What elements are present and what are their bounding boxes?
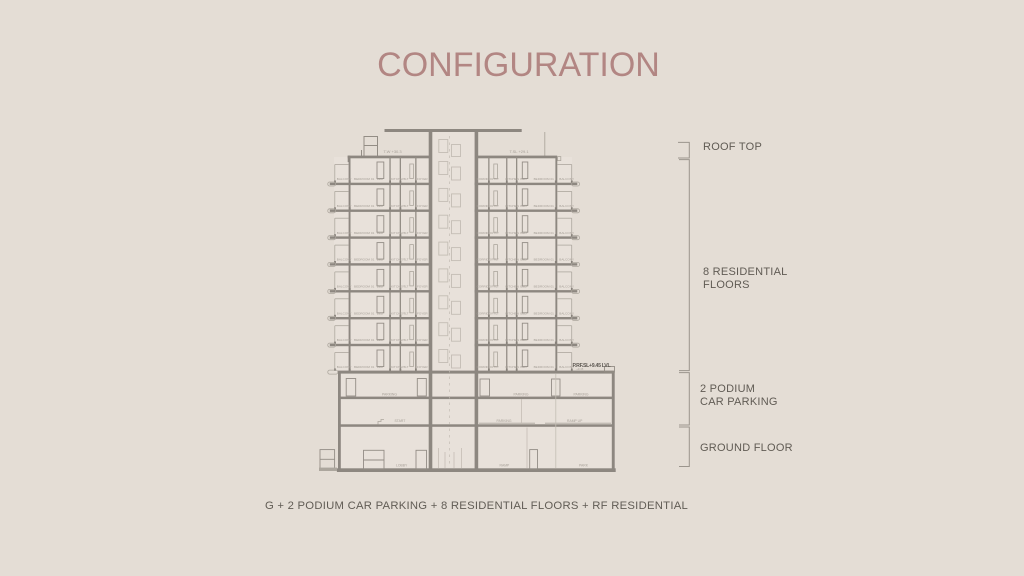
svg-text:TLT: TLT xyxy=(494,338,499,342)
svg-text:TLT: TLT xyxy=(494,365,499,369)
svg-text:BED: BED xyxy=(377,365,384,369)
svg-text:PARKING: PARKING xyxy=(382,392,397,396)
svg-text:BED: BED xyxy=(520,231,527,235)
svg-text:BED: BED xyxy=(377,204,384,208)
svg-text:TLT: TLT xyxy=(403,231,408,235)
svg-text:PARKING: PARKING xyxy=(574,392,589,396)
svg-text:TLT: TLT xyxy=(403,365,408,369)
svg-text:BEDROOM 01: BEDROOM 01 xyxy=(534,311,555,315)
svg-text:FOYER: FOYER xyxy=(417,338,428,342)
svg-text:BED: BED xyxy=(520,204,527,208)
svg-text:KITCHEN: KITCHEN xyxy=(505,204,519,208)
svg-text:FOYER: FOYER xyxy=(417,231,428,235)
svg-text:LOBBY: LOBBY xyxy=(396,463,408,467)
svg-text:BED: BED xyxy=(520,365,527,369)
svg-text:TLT: TLT xyxy=(403,338,408,342)
svg-text:CORRIDOR: CORRIDOR xyxy=(477,311,495,315)
svg-text:PARK: PARK xyxy=(579,463,589,467)
svg-text:BEDROOM 01: BEDROOM 01 xyxy=(354,177,375,181)
svg-text:TLT: TLT xyxy=(494,177,499,181)
svg-text:RAMP UP: RAMP UP xyxy=(567,419,583,423)
svg-text:PARKING: PARKING xyxy=(497,419,512,423)
svg-text:CORRIDOR: CORRIDOR xyxy=(477,338,495,342)
svg-text:BEDROOM 01: BEDROOM 01 xyxy=(534,285,555,289)
svg-text:TLT: TLT xyxy=(494,258,499,262)
svg-text:BED: BED xyxy=(377,177,384,181)
svg-text:CORRIDOR: CORRIDOR xyxy=(477,285,495,289)
svg-text:FOYER: FOYER xyxy=(417,258,428,262)
svg-text:T.W +30.3: T.W +30.3 xyxy=(384,149,403,154)
svg-text:BED: BED xyxy=(377,338,384,342)
svg-text:TLT: TLT xyxy=(403,311,408,315)
svg-text:CORRIDOR: CORRIDOR xyxy=(477,365,495,369)
svg-text:BEDROOM 01: BEDROOM 01 xyxy=(534,365,555,369)
svg-text:BED: BED xyxy=(377,258,384,262)
svg-text:BEDROOM 01: BEDROOM 01 xyxy=(354,338,375,342)
svg-text:FOYER: FOYER xyxy=(417,365,428,369)
svg-text:CORRIDOR: CORRIDOR xyxy=(477,177,495,181)
svg-text:CORRIDOR: CORRIDOR xyxy=(477,204,495,208)
svg-text:TLT: TLT xyxy=(494,285,499,289)
svg-text:T.SL +29.1: T.SL +29.1 xyxy=(510,149,530,154)
svg-text:START: START xyxy=(395,419,406,423)
svg-text:RAMP: RAMP xyxy=(500,463,511,467)
svg-text:BEDROOM 01: BEDROOM 01 xyxy=(354,204,375,208)
svg-text:TLT: TLT xyxy=(494,204,499,208)
svg-text:FOYER: FOYER xyxy=(417,177,428,181)
svg-text:BED: BED xyxy=(520,338,527,342)
svg-text:BED: BED xyxy=(520,311,527,315)
svg-text:BEDROOM 01: BEDROOM 01 xyxy=(354,285,375,289)
svg-text:BALCONY: BALCONY xyxy=(337,204,352,208)
svg-text:FOYER: FOYER xyxy=(417,204,428,208)
svg-text:FOYER: FOYER xyxy=(417,285,428,289)
svg-text:BEDROOM 01: BEDROOM 01 xyxy=(534,338,555,342)
svg-text:BEDROOM 01: BEDROOM 01 xyxy=(354,258,375,262)
svg-text:BEDROOM 01: BEDROOM 01 xyxy=(534,258,555,262)
svg-text:BED: BED xyxy=(377,285,384,289)
svg-text:BED: BED xyxy=(520,258,527,262)
svg-text:TLT: TLT xyxy=(403,177,408,181)
svg-text:CORRIDOR: CORRIDOR xyxy=(477,258,495,262)
svg-text:TLT: TLT xyxy=(403,204,408,208)
svg-text:BALCONY: BALCONY xyxy=(559,204,574,208)
svg-text:TLT: TLT xyxy=(403,258,408,262)
svg-text:+9.45: +9.45 xyxy=(576,367,584,371)
svg-text:PARKING: PARKING xyxy=(514,392,529,396)
svg-text:BEDROOM 01: BEDROOM 01 xyxy=(534,204,555,208)
svg-text:BEDROOM 01: BEDROOM 01 xyxy=(354,311,375,315)
svg-text:TLT: TLT xyxy=(494,231,499,235)
svg-text:BED: BED xyxy=(377,311,384,315)
svg-text:TLT: TLT xyxy=(403,285,408,289)
svg-text:BEDROOM 01: BEDROOM 01 xyxy=(354,365,375,369)
svg-text:BEDROOM 01: BEDROOM 01 xyxy=(354,231,375,235)
svg-text:BEDROOM 01: BEDROOM 01 xyxy=(534,177,555,181)
svg-text:BED: BED xyxy=(520,177,527,181)
svg-text:TLT: TLT xyxy=(494,311,499,315)
svg-text:CORRIDOR: CORRIDOR xyxy=(477,231,495,235)
svg-text:BED: BED xyxy=(377,231,384,235)
svg-text:FOYER: FOYER xyxy=(417,311,428,315)
svg-text:BEDROOM 01: BEDROOM 01 xyxy=(534,231,555,235)
svg-text:BED: BED xyxy=(520,285,527,289)
